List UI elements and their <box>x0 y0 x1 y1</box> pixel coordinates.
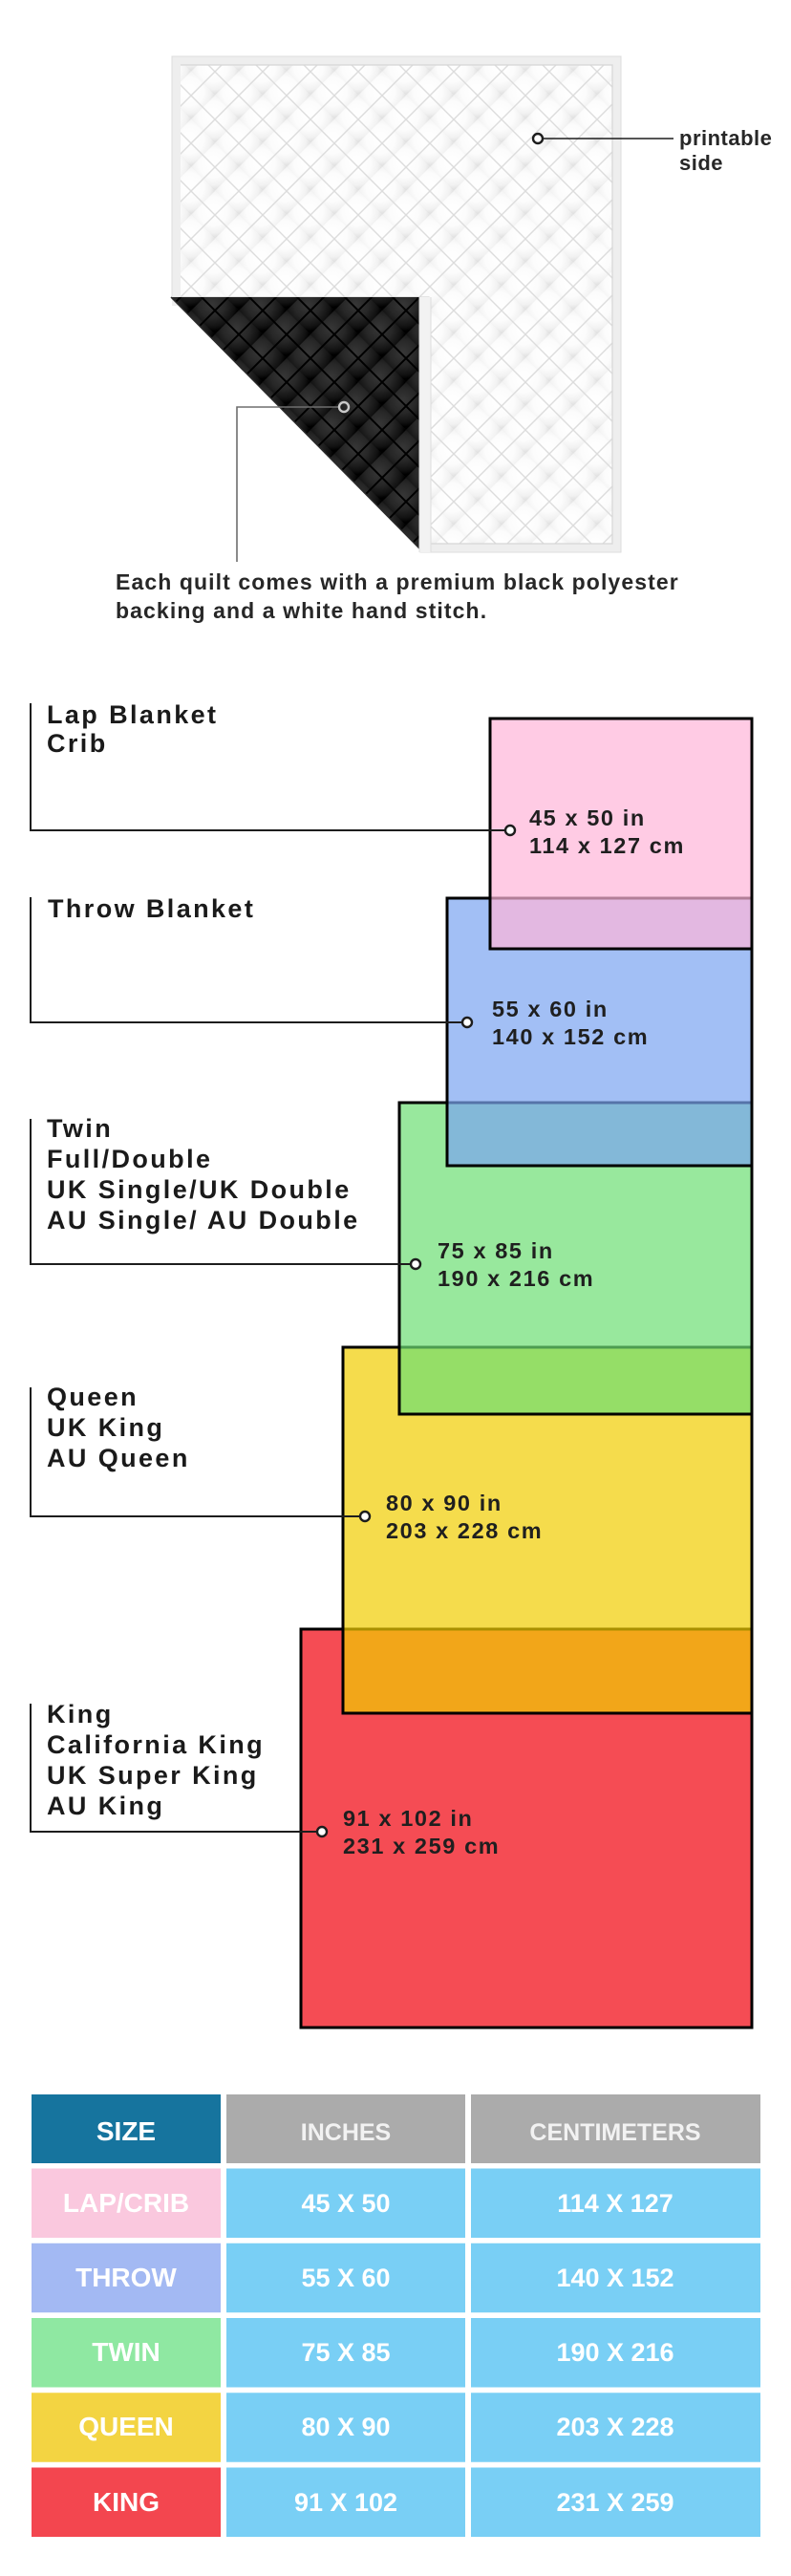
svg-text:80 x 90 in: 80 x 90 in <box>386 1491 502 1515</box>
svg-text:California King: California King <box>47 1730 265 1759</box>
svg-text:AU Queen: AU Queen <box>47 1444 190 1472</box>
svg-text:INCHES: INCHES <box>301 2119 391 2146</box>
svg-text:SIZE: SIZE <box>96 2116 156 2146</box>
svg-text:CENTIMETERS: CENTIMETERS <box>529 2119 700 2146</box>
svg-text:AU Single/ AU Double: AU Single/ AU Double <box>47 1206 360 1234</box>
svg-text:KING: KING <box>93 2487 160 2517</box>
svg-text:Throw Blanket: Throw Blanket <box>48 894 255 923</box>
svg-text:Each quilt comes with a premiu: Each quilt comes with a premium black po… <box>116 569 679 594</box>
svg-text:114 x 127 cm: 114 x 127 cm <box>529 833 685 858</box>
svg-text:backing and a white hand stitc: backing and a white hand stitch. <box>116 598 487 623</box>
svg-text:190 X 216: 190 X 216 <box>556 2338 673 2367</box>
svg-text:Twin: Twin <box>47 1114 113 1143</box>
svg-text:UK Super King: UK Super King <box>47 1761 259 1790</box>
svg-text:printable: printable <box>679 126 772 150</box>
svg-text:231 X 259: 231 X 259 <box>556 2488 673 2517</box>
svg-text:Lap Blanket: Lap Blanket <box>47 700 218 729</box>
svg-text:140 X 152: 140 X 152 <box>556 2264 673 2292</box>
svg-text:QUEEN: QUEEN <box>78 2412 174 2441</box>
svg-text:45 X 50: 45 X 50 <box>301 2189 390 2218</box>
svg-text:231 x 259 cm: 231 x 259 cm <box>343 1834 500 1858</box>
svg-text:side: side <box>679 151 723 175</box>
svg-text:Full/Double: Full/Double <box>47 1145 212 1173</box>
svg-text:190 x 216 cm: 190 x 216 cm <box>438 1266 594 1291</box>
svg-text:Crib: Crib <box>47 729 108 758</box>
svg-text:UK King: UK King <box>47 1413 164 1442</box>
svg-text:AU King: AU King <box>47 1792 164 1820</box>
svg-text:45 x 50 in: 45 x 50 in <box>529 805 646 830</box>
svg-text:75 x 85 in: 75 x 85 in <box>438 1238 554 1263</box>
svg-text:114 X 127: 114 X 127 <box>557 2189 673 2218</box>
svg-text:55 X 60: 55 X 60 <box>301 2264 390 2292</box>
svg-text:203 x 228 cm: 203 x 228 cm <box>386 1518 543 1543</box>
svg-text:THROW: THROW <box>75 2263 177 2292</box>
svg-text:75 X 85: 75 X 85 <box>301 2338 390 2367</box>
svg-text:TWIN: TWIN <box>92 2337 160 2367</box>
svg-text:Queen: Queen <box>47 1383 139 1411</box>
svg-text:140 x 152 cm: 140 x 152 cm <box>492 1024 649 1049</box>
svg-text:UK Single/UK Double: UK Single/UK Double <box>47 1175 352 1204</box>
svg-text:203 X 228: 203 X 228 <box>556 2413 673 2441</box>
svg-text:91 X 102: 91 X 102 <box>294 2488 397 2517</box>
svg-text:55 x 60 in: 55 x 60 in <box>492 997 609 1021</box>
svg-text:80 X 90: 80 X 90 <box>301 2413 390 2441</box>
svg-text:King: King <box>47 1700 114 1728</box>
svg-text:LAP/CRIB: LAP/CRIB <box>63 2188 189 2218</box>
svg-text:91 x 102 in: 91 x 102 in <box>343 1806 474 1831</box>
